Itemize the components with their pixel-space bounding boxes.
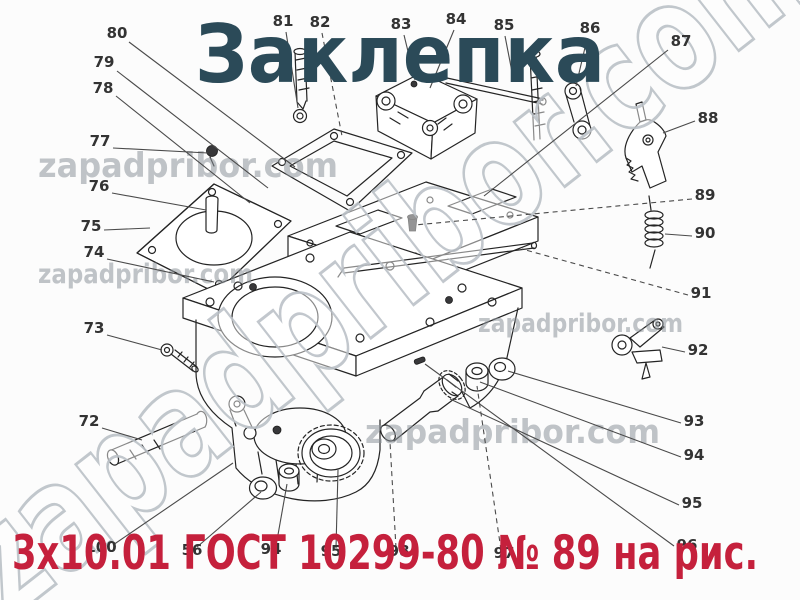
- part-label-89: 89: [695, 186, 716, 204]
- watermark-row-3: zapadpribor.com: [478, 309, 683, 339]
- leader-line-96: [425, 364, 674, 546]
- part-label-72: 72: [79, 412, 100, 430]
- part-label-95: 95: [682, 494, 703, 512]
- part-label-74: 74: [84, 243, 105, 261]
- key-pin-part: [414, 356, 426, 364]
- watermark-row-4: zapadpribor.com: [365, 412, 660, 451]
- part-label-79: 79: [94, 53, 115, 71]
- bushing-part-bottom-left: [279, 464, 299, 491]
- part-label-78: 78: [93, 79, 114, 97]
- part-label-76: 76: [89, 177, 110, 195]
- leader-line-91: [522, 249, 688, 295]
- part-label-91: 91: [691, 284, 712, 302]
- part-label-92: 92: [688, 341, 709, 359]
- part-label-90: 90: [695, 224, 716, 242]
- washer-part-bottom-left: [250, 477, 277, 499]
- part-label-73: 73: [84, 319, 105, 337]
- part-label-75: 75: [81, 217, 102, 235]
- leader-line-75: [104, 228, 150, 230]
- exploded-diagram-svg: zapadpribor.com zapadpribor.com zapadpri…: [0, 0, 800, 600]
- part-label-77: 77: [90, 132, 111, 150]
- bevel-gear-part: [298, 425, 364, 481]
- part-label-80: 80: [107, 24, 128, 42]
- washer-ring-part: [294, 110, 307, 123]
- spring-part: [645, 196, 663, 268]
- part-label-88: 88: [698, 109, 719, 127]
- part-label-87: 87: [671, 32, 692, 50]
- part-label-93: 93: [684, 412, 705, 430]
- washer-part-center: [489, 358, 515, 380]
- caption-text: 3х10.01 ГОСТ 10299-80 № 89 на рис.: [12, 526, 758, 581]
- screenshot-root: zapadpribor.com zapadpribor.com zapadpri…: [0, 0, 800, 600]
- watermark-row-2: zapadpribor.com: [38, 259, 253, 290]
- leader-line-90: [665, 234, 692, 236]
- part-label-94: 94: [684, 446, 705, 464]
- pin-part: [206, 196, 218, 233]
- page-title: Заклепка: [195, 8, 605, 101]
- leader-line-92: [662, 347, 685, 352]
- leader-line-76: [112, 193, 206, 210]
